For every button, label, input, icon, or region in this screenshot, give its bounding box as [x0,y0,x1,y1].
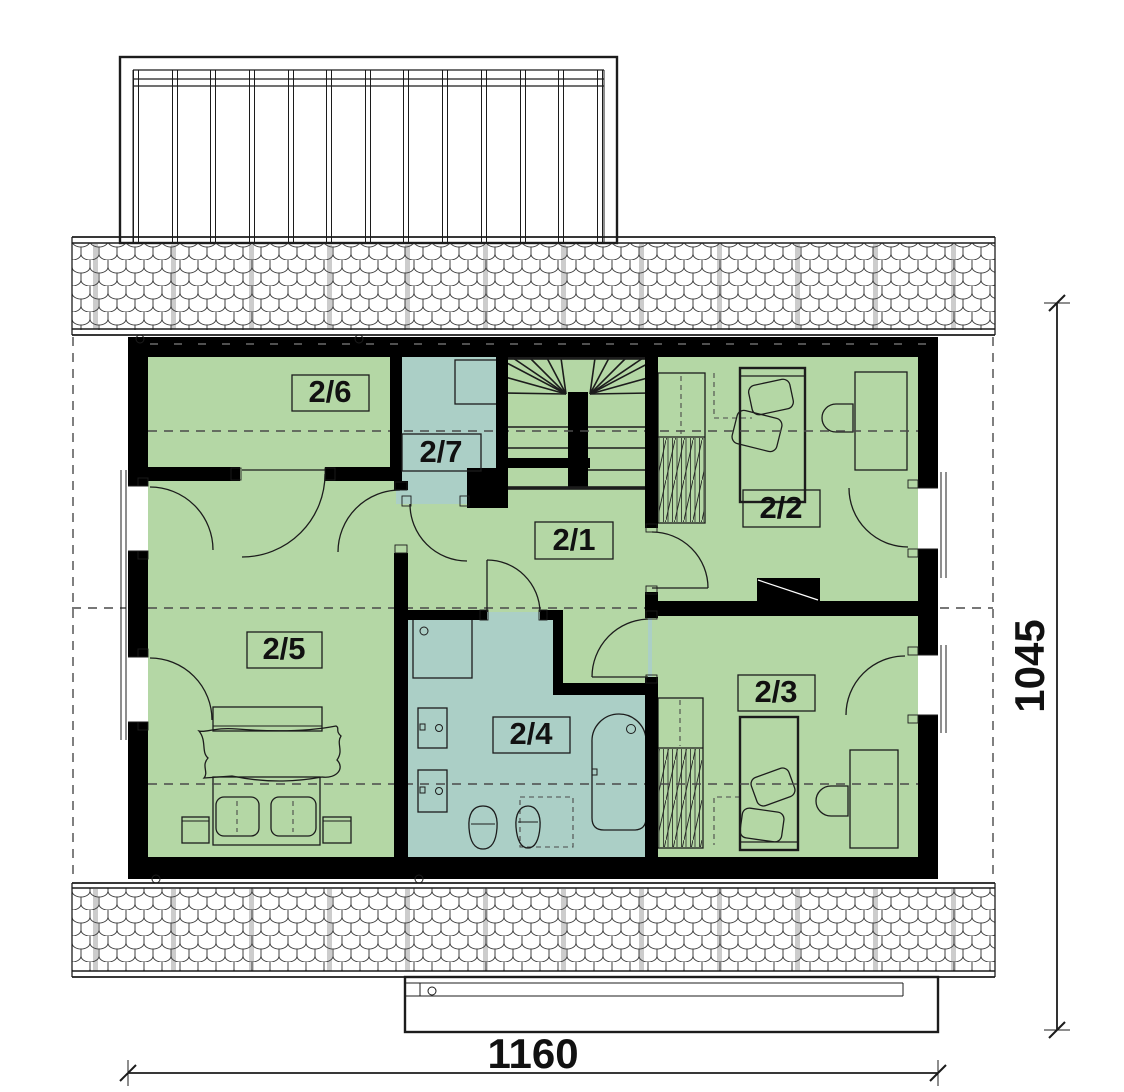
exterior-wall-left [128,337,148,486]
exterior-wall-right [918,337,938,488]
wall-bath-step [553,610,563,695]
wall-2-6 [148,467,240,481]
wall-hall-2-2 [645,357,658,528]
wall-stair-left [496,357,508,470]
dimension-height: 1045 [1006,295,1070,1038]
dimension-height-value: 1045 [1006,619,1053,712]
floor-plan-drawing: 2/6 2/7 2/1 2/2 2/3 2/4 2/5 [0,0,1124,1092]
wall-2-6-2-7 [390,357,402,472]
window-left-2 [128,649,148,730]
window-left-1 [128,478,148,559]
wall-pocket-bottom [563,683,655,695]
svg-text:2/6: 2/6 [308,374,351,409]
svg-text:2/3: 2/3 [754,674,797,709]
balcony-posts [134,70,603,243]
wardrobe-hanging-hatch [659,749,702,847]
dimension-width: 1160 [120,1030,946,1086]
svg-text:2/5: 2/5 [262,631,305,666]
drain-symbol [428,987,436,995]
wall-2-2-2-3 [650,601,938,616]
svg-text:2/7: 2/7 [419,434,462,469]
hall-pocket-fill [560,608,648,688]
exterior-wall-top [128,337,938,357]
wall-bath-top [408,610,487,620]
wall-corner-block [467,468,508,508]
exterior-wall-bottom [128,857,938,879]
wardrobe-hanging-hatch [659,438,704,522]
stair-spine-wall [568,392,588,488]
roof-band-top [72,237,995,335]
svg-text:2/2: 2/2 [759,490,802,525]
wall-bath-2-3 [645,677,658,870]
dimension-width-value: 1160 [487,1030,578,1077]
balcony-railing [120,57,617,243]
floor-plan-page: 2/6 2/7 2/1 2/2 2/3 2/4 2/5 [0,0,1124,1092]
terrace-steps [405,977,938,1032]
roof-band-bottom [72,883,995,977]
svg-text:2/1: 2/1 [552,522,595,557]
svg-text:2/4: 2/4 [509,716,553,751]
stair-landing-wall [505,458,590,468]
